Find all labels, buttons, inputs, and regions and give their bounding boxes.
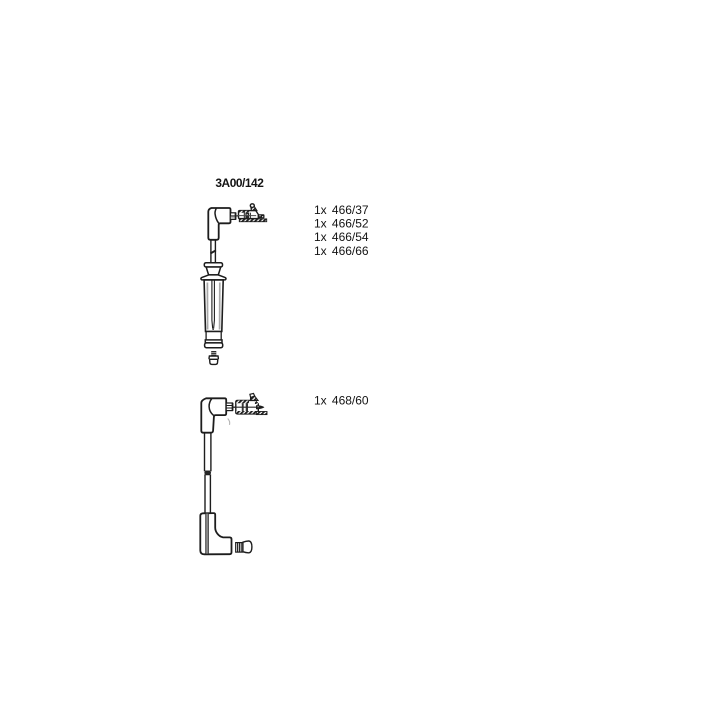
- svg-text:1x466/54: 1x466/54: [314, 230, 369, 244]
- svg-text:1x466/52: 1x466/52: [314, 217, 369, 231]
- svg-text:1x468/60: 1x468/60: [314, 394, 369, 408]
- svg-text:3A00/142: 3A00/142: [215, 176, 264, 190]
- svg-text:1x466/66: 1x466/66: [314, 244, 369, 258]
- svg-text:1x466/37: 1x466/37: [314, 203, 369, 217]
